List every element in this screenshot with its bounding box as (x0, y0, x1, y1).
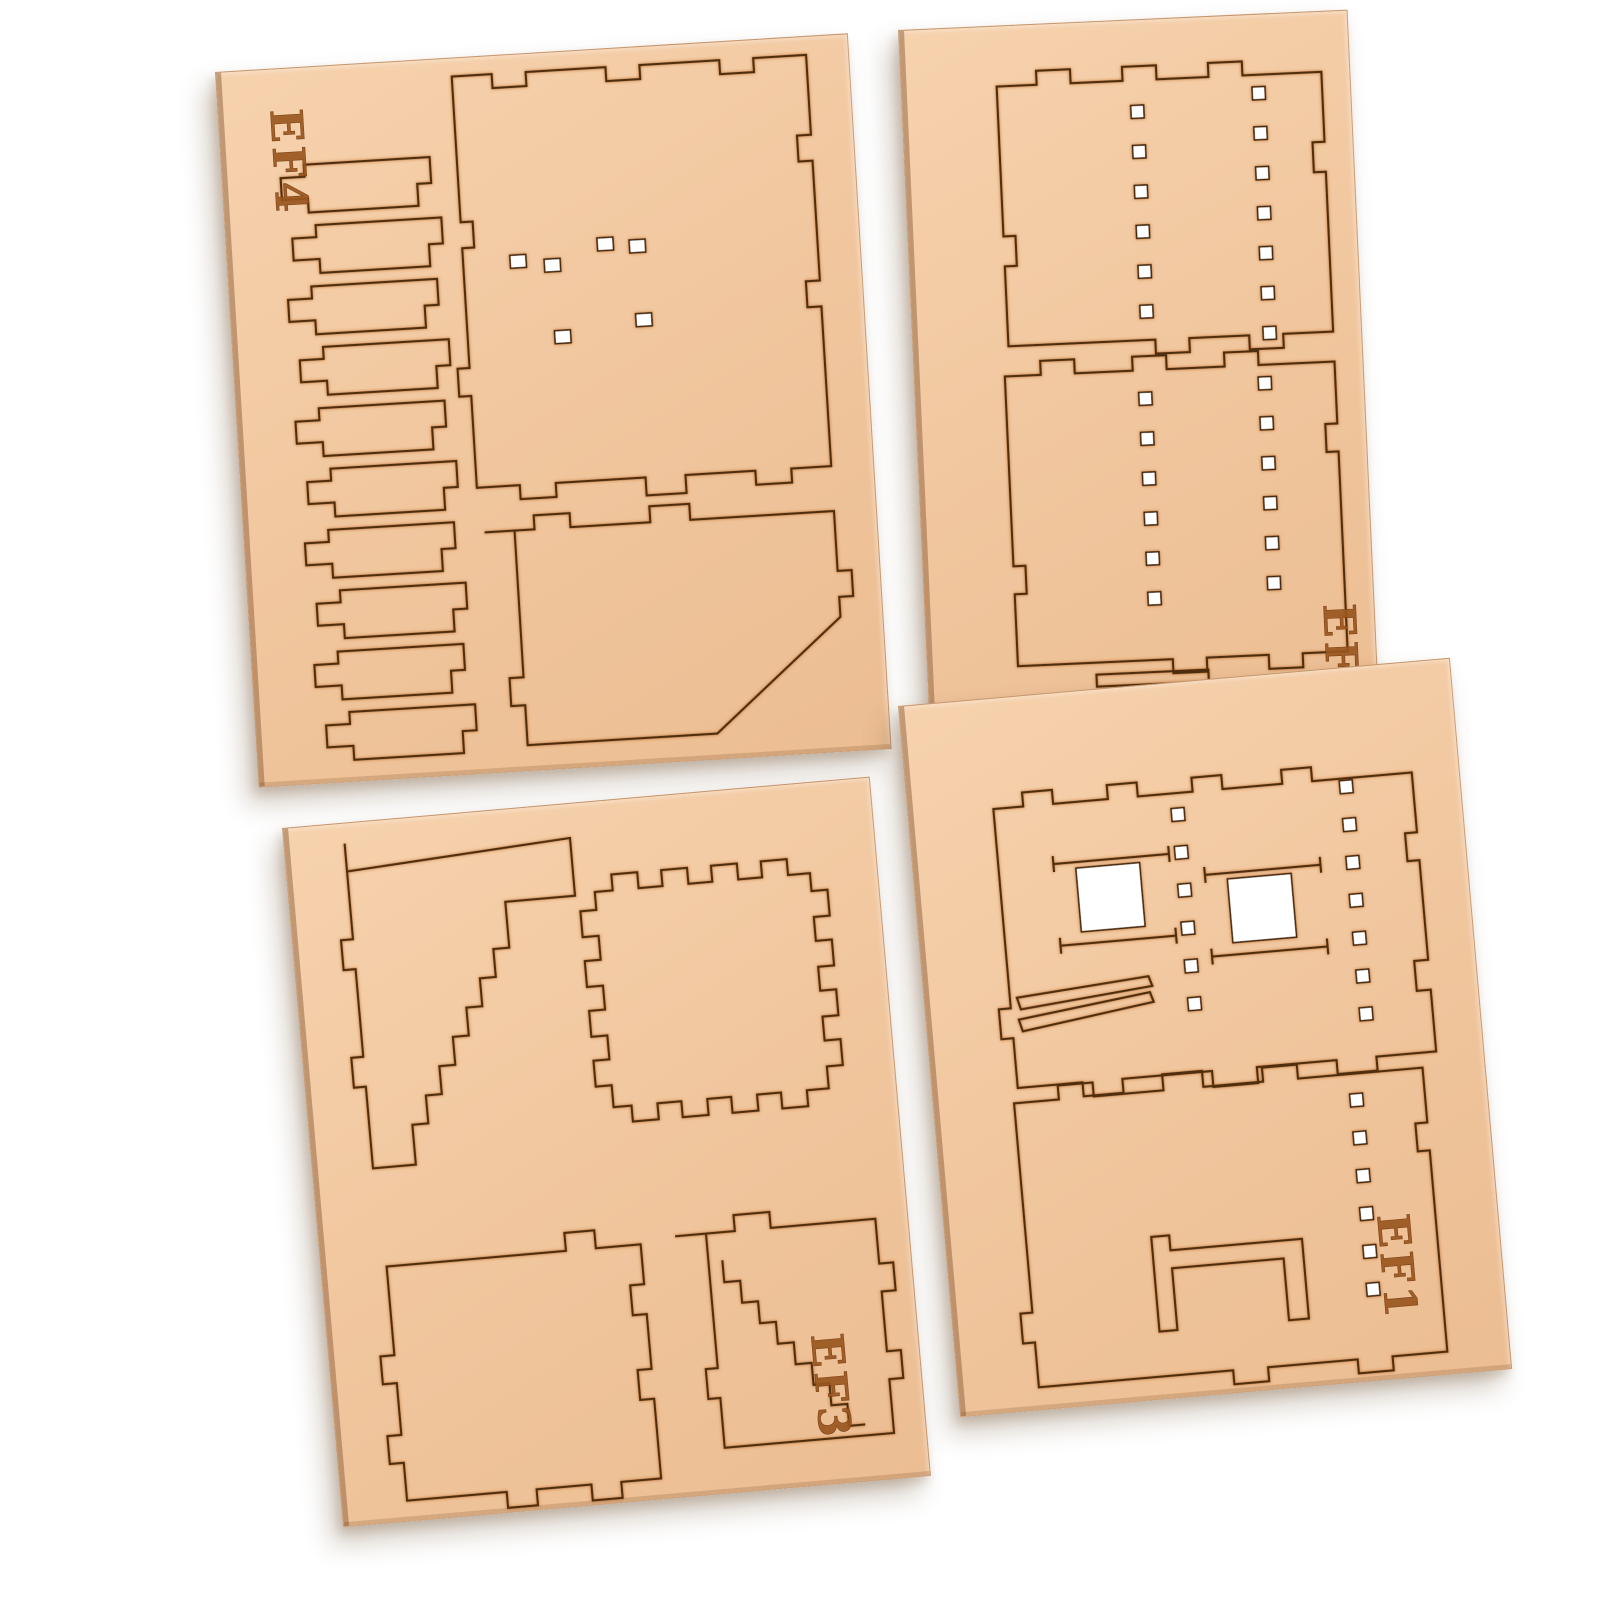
sheet-ef4-cut-pattern: EF4 (216, 34, 890, 786)
sheet-ef1-cut-pattern: EF1 (899, 659, 1511, 1416)
sheet-label-ef1: EF1 (1366, 1212, 1426, 1323)
sheet-ef2-cut-pattern: EF2 (899, 11, 1380, 776)
sheet-ef1: EF1 (898, 658, 1512, 1418)
sheet-label-ef3: EF3 (800, 1331, 860, 1442)
sheet-label-ef4: EF4 (259, 107, 316, 217)
sheet-ef3: EF3 (282, 777, 931, 1528)
product-photo: EF4 (0, 0, 1600, 1600)
sheet-ef3-cut-pattern: EF3 (283, 778, 930, 1527)
sheet-ef4: EF4 (215, 33, 892, 787)
sheet-ef2: EF2 (898, 10, 1381, 777)
